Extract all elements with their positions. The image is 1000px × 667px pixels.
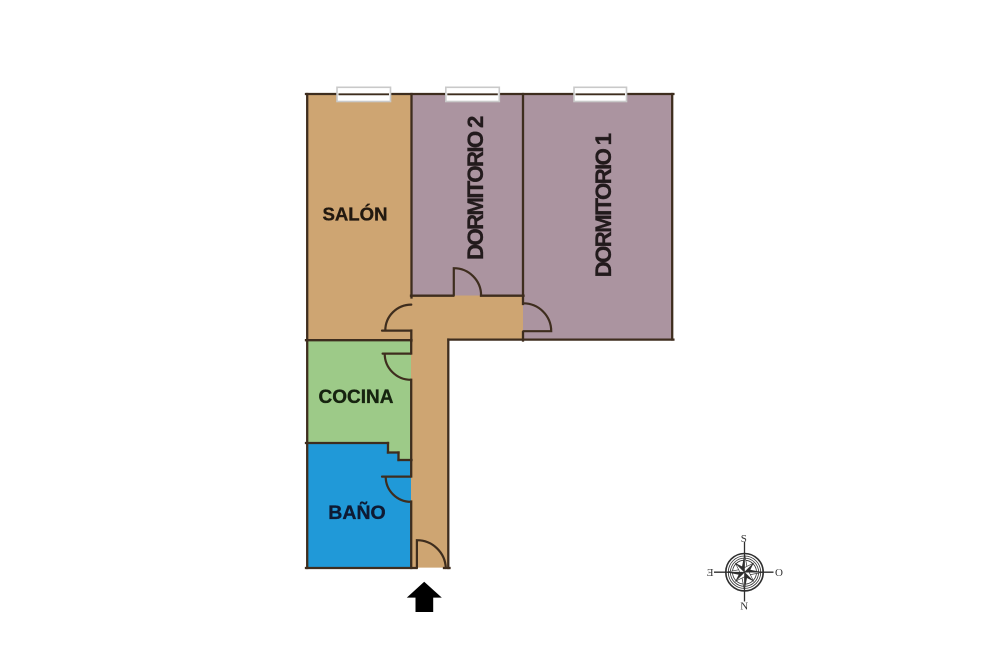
svg-text:BAÑO: BAÑO: [328, 501, 385, 524]
svg-text:O: O: [775, 567, 783, 579]
svg-text:DORMITORIO 1: DORMITORIO 1: [591, 133, 616, 277]
svg-text:DORMITORIO 2: DORMITORIO 2: [463, 116, 488, 260]
svg-text:SALÓN: SALÓN: [322, 204, 387, 225]
svg-text:S: S: [741, 533, 747, 545]
svg-text:E: E: [707, 567, 714, 579]
svg-text:N: N: [740, 601, 748, 613]
svg-text:COCINA: COCINA: [319, 387, 394, 408]
